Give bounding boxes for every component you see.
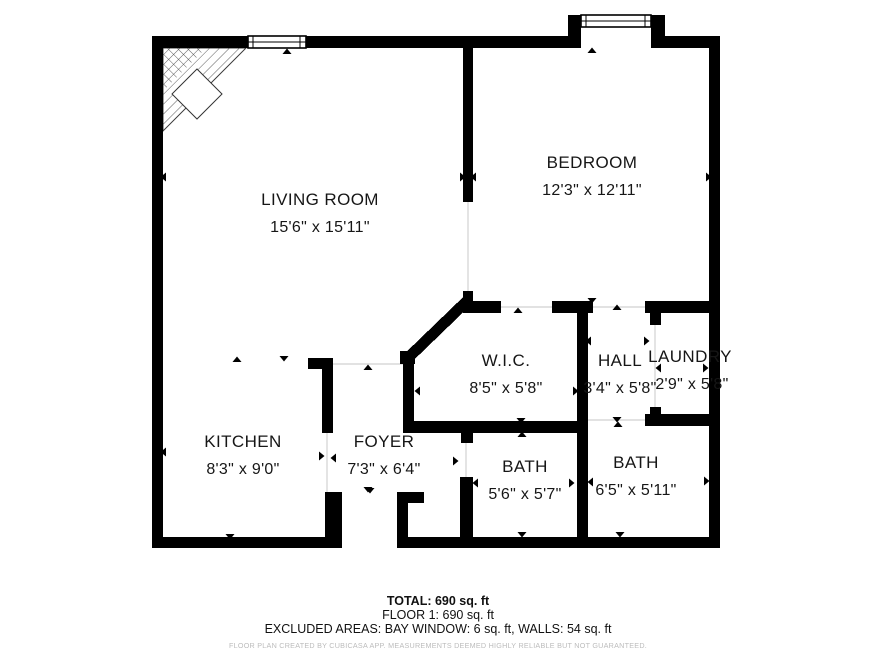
wall bbox=[397, 492, 408, 548]
room-dims: 12'3" x 12'11" bbox=[542, 182, 642, 199]
wall bbox=[577, 301, 588, 433]
room-name: FOYER bbox=[354, 432, 415, 451]
window-icon bbox=[248, 36, 306, 48]
wall bbox=[322, 358, 333, 433]
wall bbox=[152, 36, 163, 548]
room-name: KITCHEN bbox=[204, 432, 281, 451]
floor-plan-page: LIVING ROOM 15'6" x 15'11" BEDROOM 12'3"… bbox=[0, 0, 877, 658]
room-dims: 2'9" x 5'8" bbox=[655, 376, 728, 393]
room-name: LAUNDRY bbox=[648, 347, 732, 366]
excluded-areas-text: EXCLUDED AREAS: BAY WINDOW: 6 sq. ft, WA… bbox=[265, 622, 612, 636]
wall bbox=[460, 477, 473, 548]
room-dims: 8'3" x 9'0" bbox=[206, 461, 279, 478]
floor-area-text: FLOOR 1: 690 sq. ft bbox=[382, 608, 494, 622]
wall bbox=[152, 537, 342, 548]
wall bbox=[306, 36, 568, 48]
room-dims: 8'5" x 5'8" bbox=[469, 380, 542, 397]
room-dims: 6'5" x 5'11" bbox=[595, 482, 676, 499]
room-name: BATH bbox=[613, 453, 659, 472]
wall bbox=[403, 421, 588, 433]
wall bbox=[650, 301, 661, 325]
wall bbox=[325, 492, 342, 548]
room-name: BEDROOM bbox=[547, 153, 638, 172]
room-name: LIVING ROOM bbox=[261, 190, 379, 209]
room-name: W.I.C. bbox=[482, 351, 531, 370]
wall bbox=[397, 537, 720, 548]
wall bbox=[152, 36, 248, 48]
disclaimer-text: FLOOR PLAN CREATED BY CUBICASA APP. MEAS… bbox=[229, 641, 647, 650]
floor-plan-canvas: LIVING ROOM 15'6" x 15'11" BEDROOM 12'3"… bbox=[0, 0, 877, 658]
wall bbox=[709, 36, 720, 548]
room-name: BATH bbox=[502, 457, 548, 476]
room-dims: 5'6" x 5'7" bbox=[488, 486, 561, 503]
room-name: HALL bbox=[598, 351, 642, 370]
wall bbox=[461, 433, 473, 443]
total-area-text: TOTAL: 690 sq. ft bbox=[387, 594, 490, 608]
bay-window-icon bbox=[581, 15, 651, 27]
room-dims: 3'4" x 5'8" bbox=[583, 380, 656, 397]
room-dims: 15'6" x 15'11" bbox=[270, 219, 370, 236]
room-dims: 7'3" x 6'4" bbox=[347, 461, 420, 478]
wall bbox=[577, 421, 588, 548]
wall bbox=[403, 351, 414, 423]
